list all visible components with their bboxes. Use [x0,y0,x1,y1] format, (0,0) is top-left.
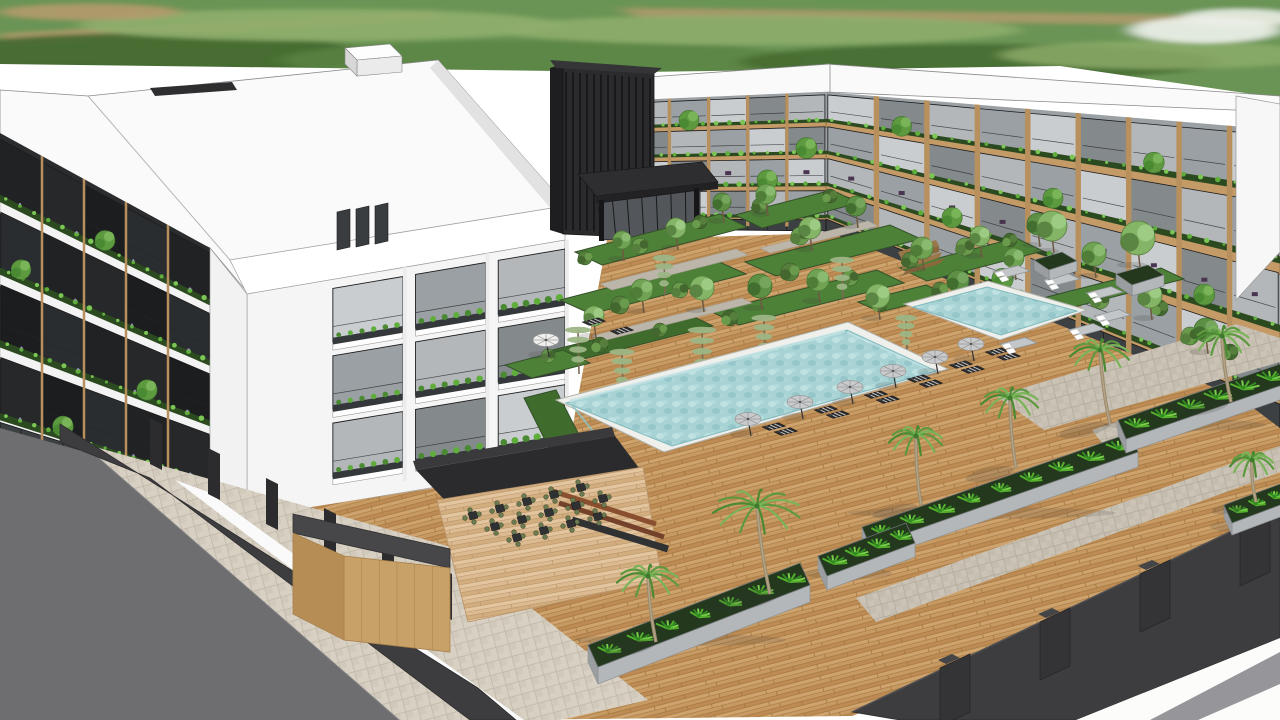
architectural-render-viewport [0,0,1280,720]
sketchup-3d-render [0,0,1280,720]
